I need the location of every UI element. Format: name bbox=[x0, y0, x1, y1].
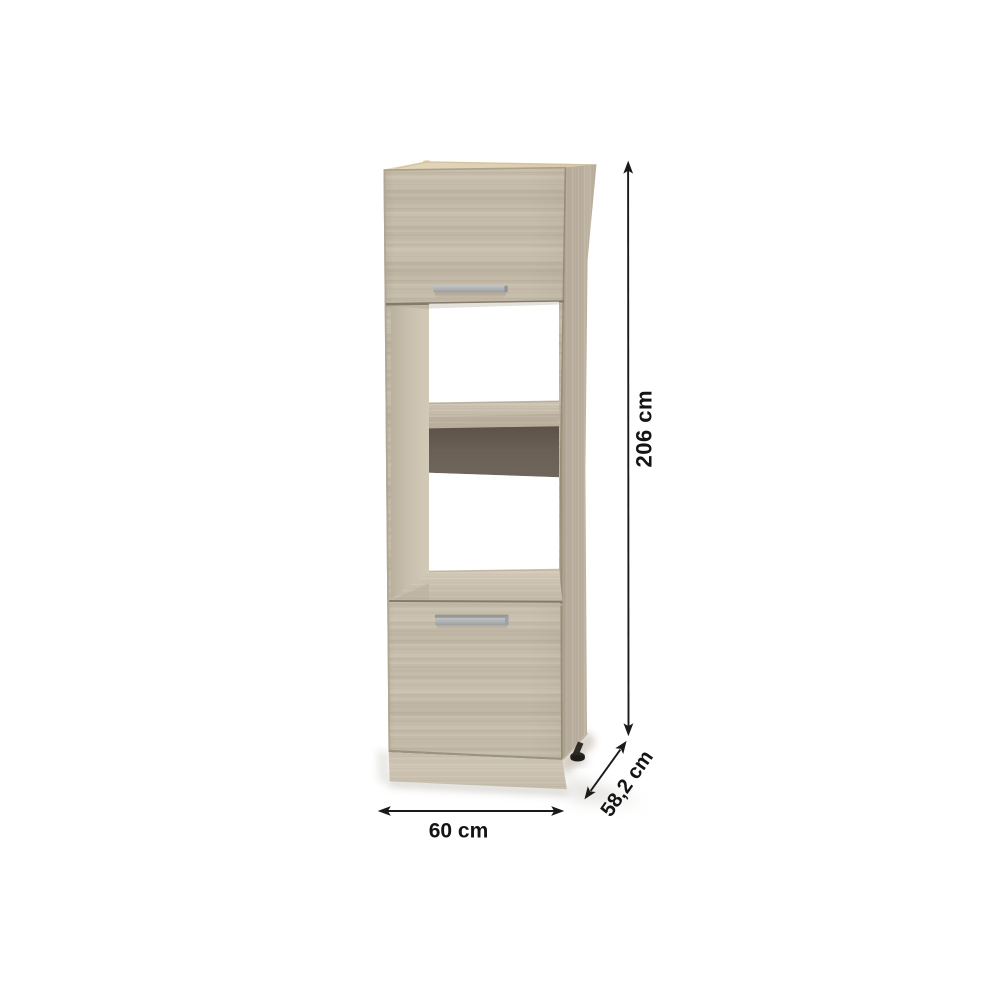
svg-text:60 cm: 60 cm bbox=[429, 820, 489, 843]
svg-text:206 cm: 206 cm bbox=[632, 390, 657, 468]
